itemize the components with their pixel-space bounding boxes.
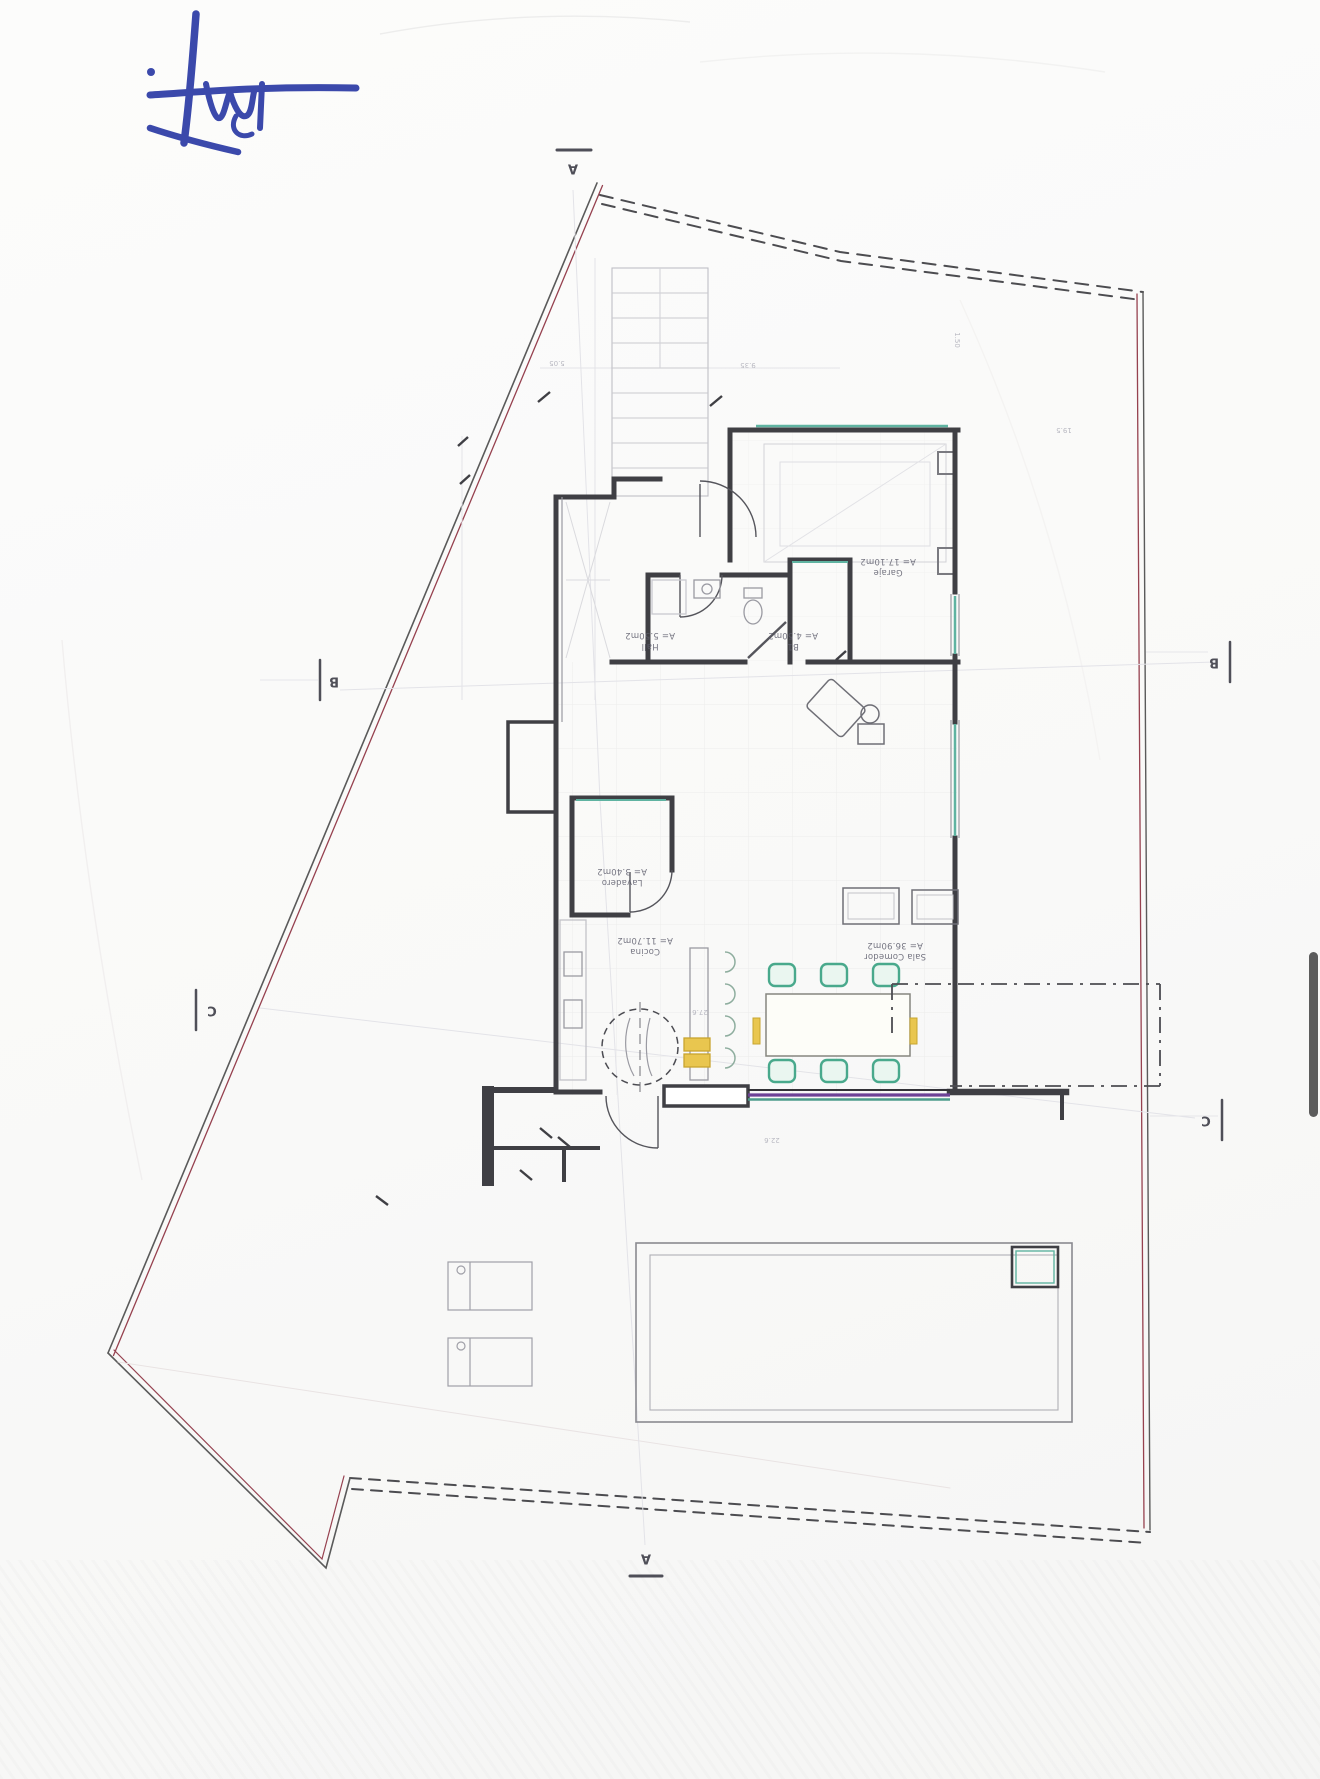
section-marker-a-bottom: A xyxy=(641,1551,651,1566)
room-label-cocina: Cocina A= 11.70m2 xyxy=(617,934,673,956)
room-label-lavadero: Lavadero A= 3.40m2 xyxy=(597,865,647,887)
kitchen-appliance-yellow-2 xyxy=(684,1054,710,1067)
room-label-garaje: Garaje A= 17.10m2 xyxy=(860,555,916,577)
room-label-b1: B1 A= 4.50m2 xyxy=(768,629,818,651)
swimming-pool xyxy=(636,1243,1072,1422)
dining-table xyxy=(766,994,910,1056)
exterior-planter-walls xyxy=(508,722,556,812)
exterior-stairs xyxy=(612,268,708,496)
scrollbar-thumb[interactable] xyxy=(1309,952,1318,1117)
room-label-hall: Hall A= 5.50m2 xyxy=(625,629,675,651)
section-marker-a-top: A xyxy=(568,161,578,176)
kitchen-appliance-yellow xyxy=(684,1038,710,1051)
porch-door-arc xyxy=(606,1096,658,1148)
scanned-floorplan-page: Garaje A= 17.10m2 Hall A= 5.50m2 B1 A= 4… xyxy=(0,0,1320,1779)
dimension-label: 5.05 xyxy=(549,359,565,367)
floorplan-drawing xyxy=(0,0,1320,1779)
section-marker-c-right: C xyxy=(1201,1113,1211,1128)
dimension-label: 19.5 xyxy=(1056,426,1072,434)
shower xyxy=(652,580,686,614)
section-marker-b-right: B xyxy=(1209,655,1219,670)
table-end-accent-right xyxy=(910,1018,917,1044)
pool-steps xyxy=(1012,1247,1058,1287)
sliding-glass-door xyxy=(664,1086,950,1106)
top-left-stepped-wall xyxy=(556,479,660,497)
dimension-label-vertical: 1.50 xyxy=(953,332,961,348)
dimension-label: 9.35 xyxy=(740,361,756,369)
room-label-sala-comedor: Sala Comedor A= 36.90m2 xyxy=(864,939,926,961)
handwritten-signature xyxy=(147,14,356,152)
dimension-label: 27.6 xyxy=(692,1008,708,1016)
table-end-accent-left xyxy=(753,1018,760,1044)
section-marker-c-left: C xyxy=(207,1003,217,1018)
lounger-1 xyxy=(448,1262,532,1310)
dimension-label: 22.6 xyxy=(764,1136,780,1144)
lounger-2 xyxy=(448,1338,532,1386)
sun-loungers xyxy=(448,1262,532,1386)
section-marker-b-left: B xyxy=(329,674,339,689)
entry-porch xyxy=(482,1086,600,1186)
